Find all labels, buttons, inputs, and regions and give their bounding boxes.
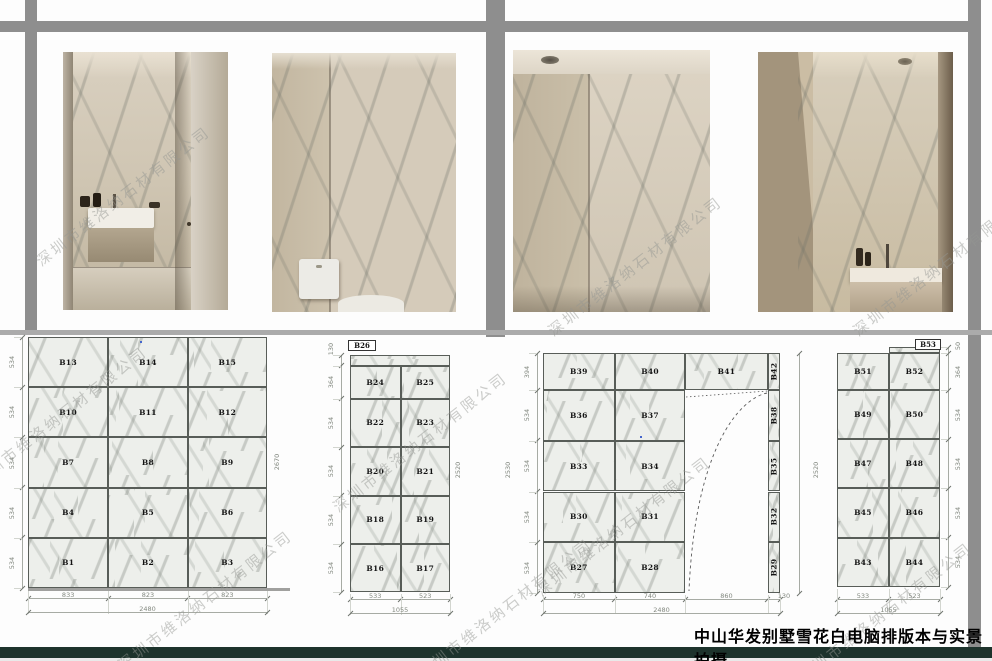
dim-label: 534 — [327, 562, 335, 574]
strip-label-box-B26: B26 — [348, 340, 376, 351]
dim-label: 534 — [523, 511, 531, 523]
extension-line — [837, 589, 838, 614]
panel-label: B45 — [854, 508, 872, 517]
dim-label: 2670 — [273, 454, 281, 471]
dim-label: 2520 — [812, 462, 820, 479]
toiletry-bottles — [865, 252, 871, 266]
dim-label: 2480 — [653, 606, 670, 614]
panel-label: B46 — [906, 508, 924, 517]
basin-pedestal — [88, 228, 154, 262]
panel-label: B6 — [221, 508, 233, 517]
door-leaf-right — [175, 52, 191, 310]
ceiling-glow — [813, 52, 938, 78]
dim-label: 534 — [523, 409, 531, 421]
panel-label: B5 — [142, 508, 154, 517]
extension-line — [333, 447, 341, 448]
dim-label: 534 — [954, 408, 962, 420]
panel-label: B4 — [62, 508, 74, 517]
stone-panel-B9: B9 — [188, 437, 267, 487]
extension-line — [941, 353, 948, 354]
toilet-seat — [338, 295, 404, 312]
stone-panel-B22: B22 — [350, 399, 401, 448]
stone-panel-B51: B51 — [837, 353, 889, 390]
panel-label: B13 — [59, 358, 77, 367]
frame-bar-left — [25, 0, 37, 335]
bathroom-photo-2 — [272, 53, 456, 312]
extension-line — [941, 488, 948, 489]
panel-label: B22 — [366, 418, 384, 427]
dim-line — [22, 337, 23, 588]
dim-label: 364 — [327, 376, 335, 388]
dim-label: 1055 — [392, 606, 409, 614]
panel-label: B47 — [854, 459, 872, 468]
extension-line — [615, 595, 616, 614]
dim-label: 860 — [720, 592, 732, 600]
dim-label: 364 — [954, 365, 962, 377]
extension-line — [333, 592, 341, 593]
extension-line — [108, 591, 109, 614]
recessed-light — [898, 58, 912, 65]
stone-panel-B24: B24 — [350, 366, 401, 399]
dim-label: 2520 — [454, 462, 462, 479]
extension-line — [941, 587, 948, 588]
strip-label-box-B53: B53 — [915, 339, 941, 350]
stone-panel-B49: B49 — [837, 390, 889, 439]
panel-label: B52 — [906, 367, 924, 376]
dim-label: 534 — [523, 561, 531, 573]
extension-line — [529, 441, 537, 442]
stone-panel-B16: B16 — [350, 544, 401, 592]
extension-line — [333, 399, 341, 400]
panel-label: B12 — [218, 408, 236, 417]
stone-strip — [350, 355, 450, 366]
dim-label: 523 — [419, 592, 431, 600]
extension-line — [529, 542, 537, 543]
toiletry-bottles — [856, 248, 863, 266]
extension-line — [768, 595, 769, 614]
door-handle — [187, 222, 191, 226]
panel-label: B50 — [906, 410, 924, 419]
door-swing-curve — [689, 393, 767, 591]
stone-panel-B11: B11 — [108, 387, 187, 437]
extension-line — [14, 588, 22, 589]
panel-label: B44 — [906, 558, 924, 567]
extension-line — [685, 595, 686, 614]
dim-label: 2530 — [504, 462, 512, 479]
panel-label: B8 — [142, 458, 154, 467]
panel-label: B49 — [854, 410, 872, 419]
stone-panel-B43: B43 — [837, 538, 889, 587]
dim-label: 833 — [62, 591, 74, 599]
stone-panel-B50: B50 — [889, 390, 940, 439]
dim-label: 740 — [644, 592, 656, 600]
frame-bar-horizontal — [0, 21, 968, 32]
stone-panel-B25: B25 — [401, 366, 451, 399]
dim-label: 534 — [327, 465, 335, 477]
panel-label: B43 — [854, 558, 872, 567]
extension-line — [940, 589, 941, 614]
faucet — [886, 244, 889, 268]
dim-label: 534 — [327, 514, 335, 526]
extension-line — [941, 439, 948, 440]
dim-label: 534 — [954, 458, 962, 470]
dim-label: 394 — [523, 365, 531, 377]
frame-bar-middle — [486, 0, 505, 337]
panel-label: B18 — [366, 515, 384, 524]
extension-line — [14, 387, 22, 388]
dim-line — [799, 353, 800, 593]
dim-label: 534 — [8, 356, 16, 368]
extension-line — [941, 390, 948, 391]
panel-label: B11 — [139, 408, 157, 417]
toiletry-items — [80, 196, 90, 207]
panel-label: B7 — [62, 458, 74, 467]
stone-layout-sheet: 深圳市维洛纳石材有限公司 深圳市维洛纳石材有限公司 深圳市维洛纳石材有限公司 深… — [0, 0, 992, 661]
panel-label: B16 — [366, 564, 384, 573]
door-jamb-right — [191, 52, 228, 310]
dim-label: 534 — [954, 507, 962, 519]
panel-label: B25 — [416, 378, 434, 387]
stone-panel-B2: B2 — [108, 538, 187, 588]
dim-label: 130 — [327, 343, 335, 355]
dim-label: 534 — [523, 460, 531, 472]
stone-panel-B12: B12 — [188, 387, 267, 437]
panel-label: B48 — [906, 459, 924, 468]
panel-label: B1 — [62, 558, 74, 567]
dim-label: 750 — [573, 592, 585, 600]
dim-label: 533 — [369, 592, 381, 600]
stone-panel-B4: B4 — [28, 488, 108, 538]
dim-label: 130 — [778, 592, 790, 600]
panel-label: B9 — [221, 458, 233, 467]
stone-panel-B1: B1 — [28, 538, 108, 588]
dim-label: 534 — [327, 417, 335, 429]
stone-panel-B46: B46 — [889, 488, 940, 537]
dim-label: 534 — [8, 506, 16, 518]
dim-label: 534 — [8, 557, 16, 569]
panel-label: B19 — [416, 515, 434, 524]
frame-bar-under-photos — [0, 330, 992, 335]
door-opening-top-dotted — [686, 391, 768, 397]
stone-panel-B19: B19 — [401, 496, 451, 545]
stone-panel-B17: B17 — [401, 544, 451, 592]
stone-panel-B48: B48 — [889, 439, 940, 488]
recessed-light — [541, 56, 559, 64]
ceiling-glow — [272, 53, 456, 69]
extension-line — [529, 492, 537, 493]
panel-label: B51 — [854, 367, 872, 376]
dim-label: 50 — [954, 342, 962, 350]
dim-line — [341, 355, 342, 592]
stone-panel-B45: B45 — [837, 488, 889, 537]
dim-label: 2480 — [139, 605, 156, 613]
extension-line — [333, 544, 341, 545]
panel-label: B15 — [218, 358, 236, 367]
stone-panel-B47: B47 — [837, 439, 889, 488]
panel-label: B17 — [416, 564, 434, 573]
dim-label: 534 — [8, 406, 16, 418]
extension-line — [14, 488, 22, 489]
sheet-title: 中山华发别墅雪花白电脑排版本与实景拍摄 — [694, 623, 992, 661]
panel-label: B2 — [142, 558, 154, 567]
stone-panel-B15: B15 — [188, 337, 267, 387]
toilet-flush-button — [316, 265, 322, 268]
stone-panel-B52: B52 — [889, 353, 940, 390]
extension-line — [333, 366, 341, 367]
dim-label: 823 — [142, 591, 154, 599]
extension-line — [529, 353, 537, 354]
extension-line — [14, 538, 22, 539]
door-jamb-left — [63, 52, 73, 310]
panel-label: B21 — [416, 467, 434, 476]
stone-panel-B8: B8 — [108, 437, 187, 487]
extension-line — [14, 337, 22, 338]
extension-line — [529, 390, 537, 391]
panel-label: B24 — [366, 378, 384, 387]
dim-label: 533 — [857, 592, 869, 600]
extension-line — [941, 538, 948, 539]
stone-panel-B6: B6 — [188, 488, 267, 538]
stone-panel-B5: B5 — [108, 488, 187, 538]
extension-line — [941, 347, 948, 348]
blue-mark — [640, 436, 642, 438]
